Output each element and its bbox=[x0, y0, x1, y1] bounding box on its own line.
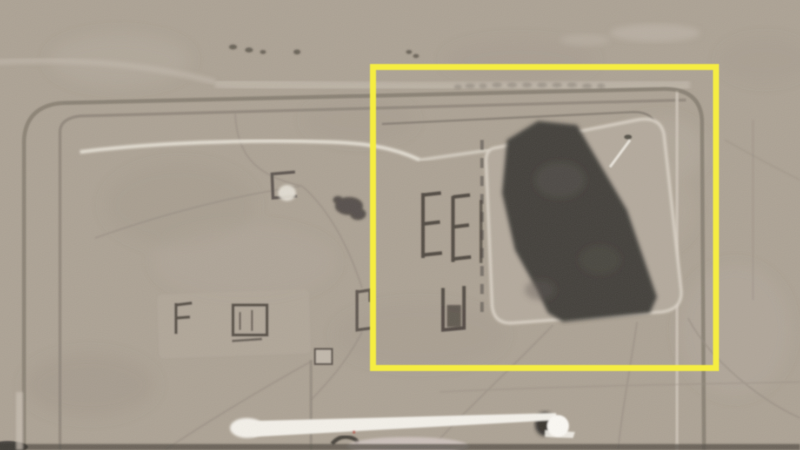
satellite-scene bbox=[0, 0, 800, 450]
satellite-image-frame bbox=[0, 0, 800, 450]
